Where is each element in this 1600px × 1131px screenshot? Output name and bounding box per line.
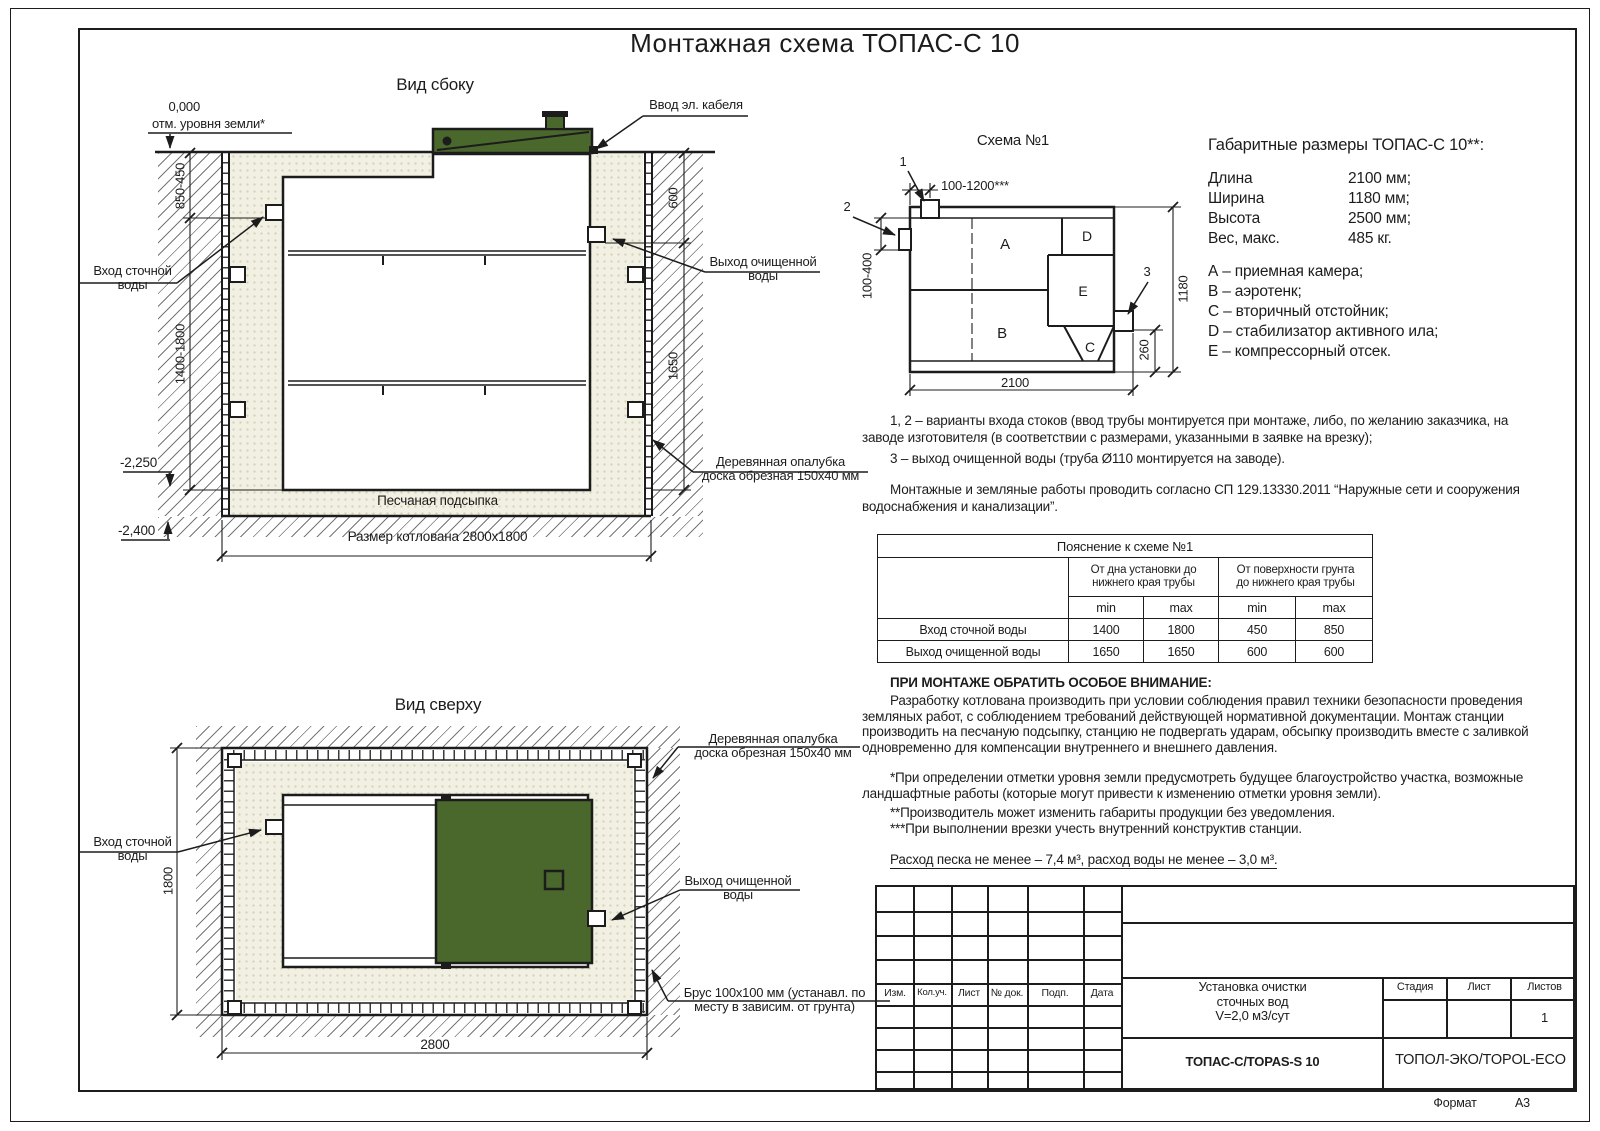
sand-backfill [230,153,643,516]
cell: 1650 [1069,641,1144,663]
title-block: Изм. Кол.уч. Лист № док. Подп. Дата Уста… [875,885,1575,1090]
company-name: ТОПОЛ-ЭКО/TOPOL-ECO [1384,1052,1577,1068]
spec-value: 1180 мм; [1348,189,1478,208]
cell: 1400 [1069,619,1144,641]
grid-line [877,1005,1121,1007]
dim-100-1200: 100-1200*** [941,179,1031,193]
compartment-d: D [1077,229,1097,243]
spec-label: Высота [1208,209,1338,228]
page-title: Монтажная схема ТОПАС-С 10 [500,36,1150,50]
grid-line [877,911,1121,913]
cell: 600 [1219,641,1296,663]
top-view-title: Вид сверху [358,698,518,712]
soil-hatch-top [196,726,680,748]
grid-line [877,1071,1121,1073]
soil-hatch-left [196,748,222,1015]
sheets-label: Листов [1512,981,1577,993]
table-row: Выход очищенной воды 1650 1650 600 600 [878,641,1373,663]
table-row: Вход сточной воды 1400 1800 450 850 [878,619,1373,641]
rev-header: Дата [1083,987,1121,999]
grid-line [877,1049,1121,1051]
sheets-value: 1 [1512,1010,1577,1025]
legend-item: D – стабилизатор активного ила; [1208,322,1568,341]
note-outlet: 3 – выход очищенной воды (труба Ø110 мон… [862,450,1548,467]
attention-body: Разработку котлована производить при усл… [862,693,1546,755]
drawing-sheet: Монтажная схема ТОПАС-С 10 [0,0,1600,1131]
dim-1800: 1800 [161,867,176,895]
grid-line [877,959,1121,961]
model-name: ТОПАС-С/TOPAS-S 10 [1123,1054,1382,1069]
grid-line [1121,977,1577,979]
attention-title: ПРИ МОНТАЖЕ ОБРАТИТЬ ОСОБОЕ ВНИМАНИЕ: [890,676,1410,690]
grid-line [1382,999,1577,1001]
callout-2: 2 [840,200,854,214]
callout-3: 3 [1140,265,1154,279]
level-minus-2250: -2,250 [120,456,175,470]
pipe-table-sub: min [1219,597,1296,619]
soil-hatch-right [647,748,680,1015]
zero-level-note: отм. уровня земли* [152,117,302,131]
pipe-table-title: Пояснение к схеме №1 [878,535,1373,558]
doc-name: Установка очистки сточных вод V=2,0 м3/с… [1123,980,1382,1024]
cell: 600 [1296,641,1373,663]
footnote-3: ***При выполнении врезки учесть внутренн… [862,820,1552,837]
spec-value: 2100 мм; [1348,169,1478,188]
legend-item: А – приемная камера; [1208,262,1568,281]
grid-line [1121,922,1577,924]
rev-header: Подп. [1027,987,1083,999]
rev-header: № док. [987,987,1027,999]
inlet-label: Вход сточной воды [85,264,180,292]
zero-level-mark: 0,000 [128,100,200,114]
formwork-rungs-top [224,750,645,760]
footnote-2: **Производитель может изменить габариты … [862,804,1552,821]
compartment-a: A [995,238,1015,252]
row-label: Выход очищенной воды [878,641,1069,663]
legend-item: E – компрессорный отсек. [1208,342,1568,361]
stage-label: Стадия [1384,981,1446,993]
grid-line [877,935,1121,937]
formwork-rungs-bottom [224,1003,645,1013]
pipe-table-corner [878,558,1069,619]
formwork-left [221,153,230,516]
compartment-b: B [992,327,1012,341]
formwork-rungs-right [635,750,645,1013]
spec-value: 485 кг. [1348,229,1478,248]
level-minus-2400: -2,400 [118,524,173,538]
pit-size-label: Размер котлована 2800x1800 [320,530,555,544]
format-label: Формат [1420,1096,1490,1110]
cable-entry-label: Ввод эл. кабеля [640,98,752,112]
outlet-label: Выход очищенной воды [703,255,823,283]
dim-600: 600 [666,187,681,208]
note-sp-standard: Монтажные и земляные работы проводить со… [862,481,1548,515]
grid-line [1382,977,1384,1092]
side-view-title: Вид сбоку [355,78,515,92]
sheet-label: Лист [1448,981,1510,993]
pipe-table-sub: max [1144,597,1219,619]
soil-hatch-bottom [196,1015,680,1037]
cell: 1650 [1144,641,1219,663]
pipe-table-group1: От дна установки до нижнего края трубы [1069,558,1219,597]
pipe-table-sub: min [1069,597,1144,619]
row-label: Вход сточной воды [878,619,1069,641]
dim-1400-1800: 1400-1800 [173,324,188,384]
sand-backfill-plan [236,762,633,1001]
cell: 450 [1219,619,1296,641]
rev-header: Кол.уч. [913,987,951,998]
inlet-label-plan: Вход сточной воды [85,835,180,863]
note-inlet-variants: 1, 2 – варианты входа стоков (ввод трубы… [862,412,1548,446]
consumption-note: Расход песка не менее – 7,4 м³, расход в… [890,853,1277,869]
pipe-elevation-table: Пояснение к схеме №1 От дна установки до… [877,534,1373,663]
formwork-label-plan: Деревянная опалубка доска обрезная 150x4… [678,732,868,760]
legend-item: C – вторичный отстойник; [1208,302,1568,321]
dim-260: 260 [1137,339,1152,360]
pipe-table-group2: От поверхности грунта до нижнего края тр… [1219,558,1373,597]
formwork-right [644,153,653,516]
formwork-rungs-left [224,750,234,1013]
legend-item: B – аэротенк; [1208,282,1568,301]
dim-1180: 1180 [1176,275,1191,302]
spec-label: Ширина [1208,189,1338,208]
compartment-e: E [1073,284,1093,298]
format-value: А3 [1500,1096,1545,1110]
dim-850-450: 850-450 [173,163,188,209]
cell: 850 [1296,619,1373,641]
outlet-label-plan: Выход очищенной воды [678,874,798,902]
dim-2100: 2100 [985,376,1045,390]
grid-line [1121,1037,1577,1039]
spec-value: 2500 мм; [1348,209,1478,228]
specs-title: Габаритные размеры ТОПАС-С 10**: [1208,136,1538,155]
dim-1650: 1650 [666,352,681,380]
rev-header: Лист [951,987,987,999]
footnote-1: *При определении отметки уровня земли пр… [862,770,1552,801]
rev-header: Изм. [877,987,913,999]
formwork-label: Деревянная опалубка доска обрезная 150x4… [688,455,873,483]
callout-1: 1 [896,155,910,169]
spec-label: Вес, макс. [1208,229,1338,248]
pipe-table-sub: max [1296,597,1373,619]
grid-line [877,983,1121,985]
dim-2800: 2800 [400,1038,470,1052]
compartment-c: C [1080,340,1100,354]
grid-line [877,1027,1121,1029]
beam-label: Брус 100x100 мм (устанавл. по месту в за… [652,986,897,1014]
dim-100-400: 100-400 [860,253,875,299]
cell: 1800 [1144,619,1219,641]
sand-label: Песчаная подсыпка [355,494,520,508]
schema-title: Схема №1 [953,134,1073,148]
spec-label: Длина [1208,169,1338,188]
